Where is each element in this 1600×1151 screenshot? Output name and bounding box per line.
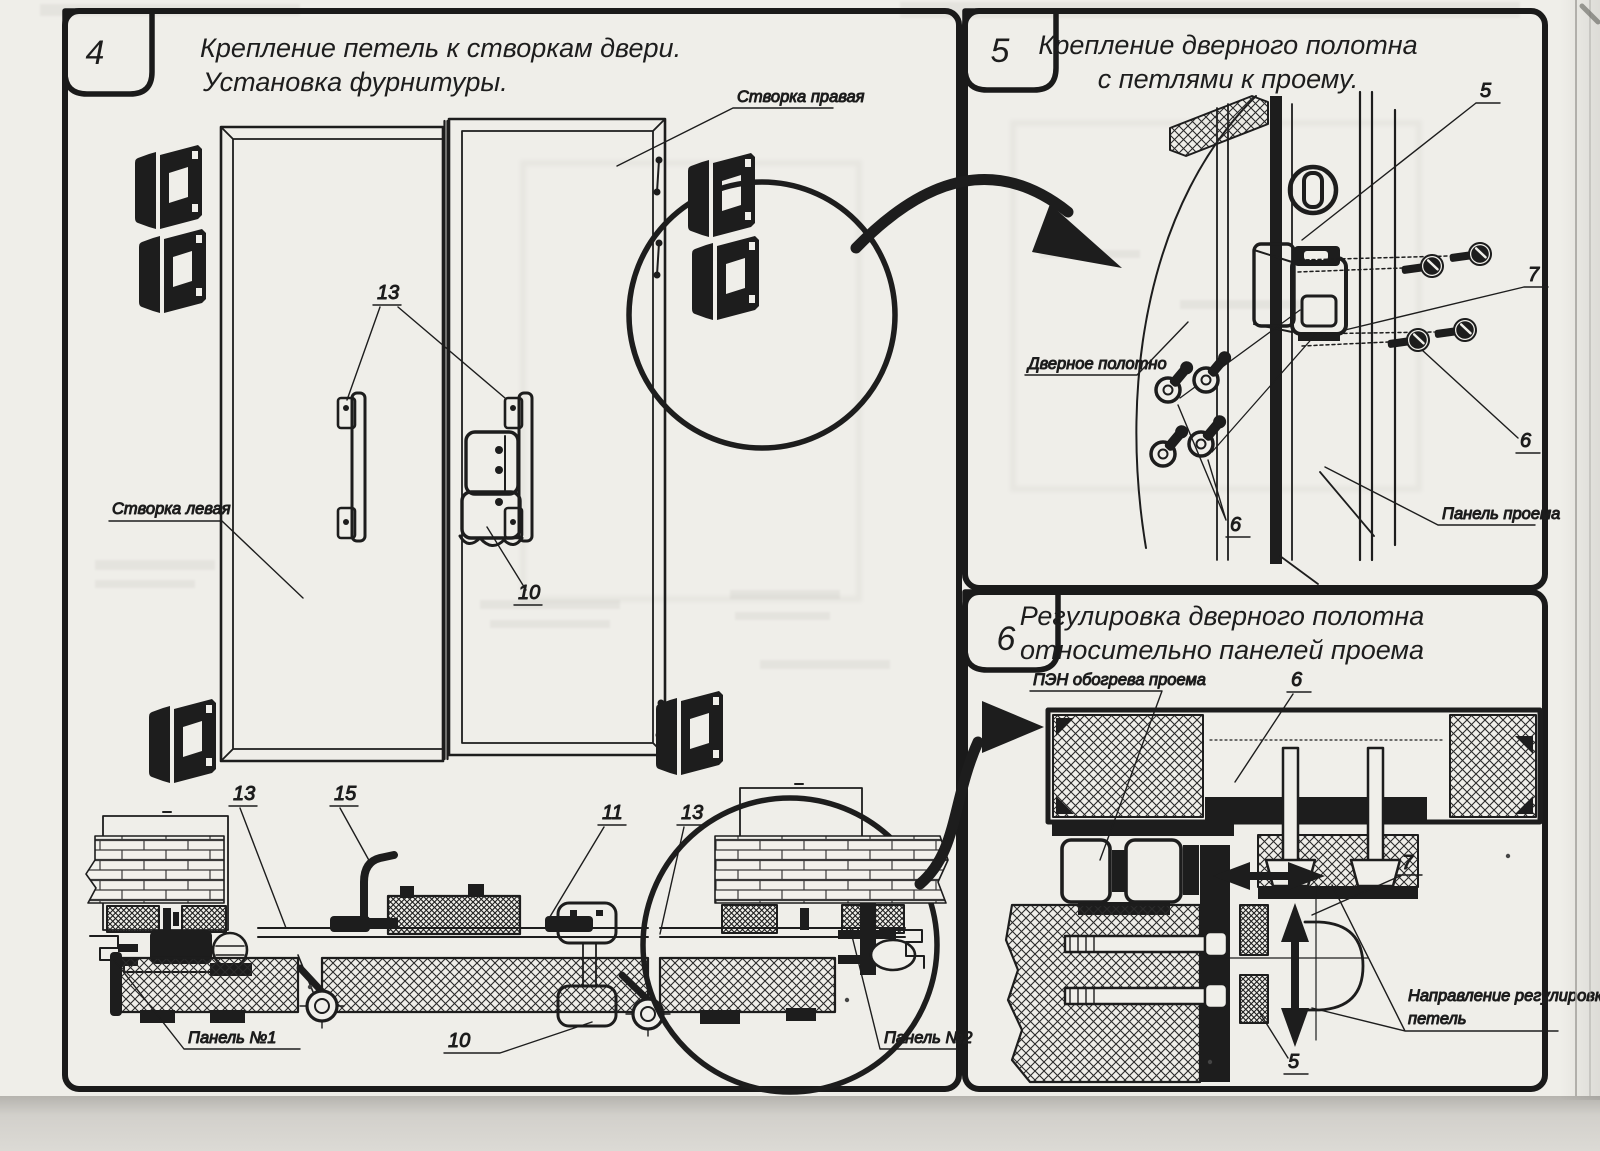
panel-6-title-line2: относительно панелей проема [1020, 635, 1424, 665]
svg-text:10: 10 [448, 1030, 470, 1052]
callout-7-screws: 7 [1345, 264, 1548, 330]
svg-text:13: 13 [233, 783, 255, 805]
svg-text:ПЭН обогрева проема: ПЭН обогрева проема [1033, 671, 1206, 689]
door-to-opening-drawing [1136, 92, 1492, 584]
drawing-canvas: 4 Крепление петель к створкам двери. Уст… [0, 0, 1600, 1151]
svg-text:Створка правая: Створка правая [737, 88, 865, 106]
callout-13-handles: 13 [347, 282, 505, 400]
panel-6-number: 6 [997, 620, 1016, 658]
callout-5-hinge: 5 [1302, 80, 1500, 240]
callout-13-bottom-left: 13 [229, 783, 286, 928]
svg-text:5: 5 [1480, 80, 1492, 102]
svg-text:13: 13 [681, 802, 703, 824]
scan-right-margin [1560, 0, 1600, 1100]
svg-text:5: 5 [1288, 1051, 1300, 1073]
scanned-assembly-drawing: 4 Крепление петель к створкам двери. Уст… [0, 0, 1600, 1151]
svg-text:11: 11 [602, 802, 623, 824]
callout-6-screws: 6 [1422, 350, 1540, 453]
svg-text:6: 6 [1230, 514, 1242, 536]
svg-text:Панель №2: Панель №2 [884, 1029, 972, 1047]
svg-text:6: 6 [1520, 430, 1532, 452]
door-leaves-drawing [221, 119, 665, 761]
panel-4-number-tab [65, 11, 152, 94]
svg-text:6: 6 [1291, 669, 1303, 691]
svg-text:13: 13 [377, 282, 399, 304]
svg-text:7: 7 [1402, 852, 1414, 874]
label-leaf-left: Створка левая [109, 500, 303, 598]
label-leaf-right: Створка правая [617, 88, 865, 166]
panel-6-title-line1: Регулировка дверного полотна [1020, 601, 1425, 631]
panel-4-title-line1: Крепление петель к створкам двери. [200, 33, 681, 63]
svg-text:15: 15 [334, 783, 357, 805]
panel-4-title-line2: Установка фурнитуры. [202, 67, 508, 97]
hinge-icons [135, 145, 895, 783]
panel-5-number: 5 [991, 32, 1010, 70]
svg-text:петель: петель [1408, 1010, 1466, 1028]
label-door-leaf: Дверное полотно [1025, 322, 1188, 375]
svg-text:10: 10 [518, 582, 540, 604]
panel-4-number: 4 [86, 34, 105, 72]
panel-5-title-line1: Крепление дверного полотна [1038, 30, 1417, 60]
svg-text:Панель проема: Панель проема [1442, 505, 1560, 523]
door-handles [338, 393, 532, 541]
svg-text:Дверное полотно: Дверное полотно [1026, 355, 1167, 373]
svg-text:7: 7 [1528, 264, 1540, 286]
svg-text:Створка левая: Створка левая [112, 500, 231, 518]
scan-bottom-margin [0, 1096, 1600, 1151]
panel-5-title-line2: с петлями к проему. [1098, 64, 1358, 94]
svg-text:Панель №1: Панель №1 [188, 1029, 276, 1047]
callout-15-hook: 15 [330, 783, 371, 864]
door-latch [460, 432, 522, 546]
detail-circle [629, 182, 895, 448]
